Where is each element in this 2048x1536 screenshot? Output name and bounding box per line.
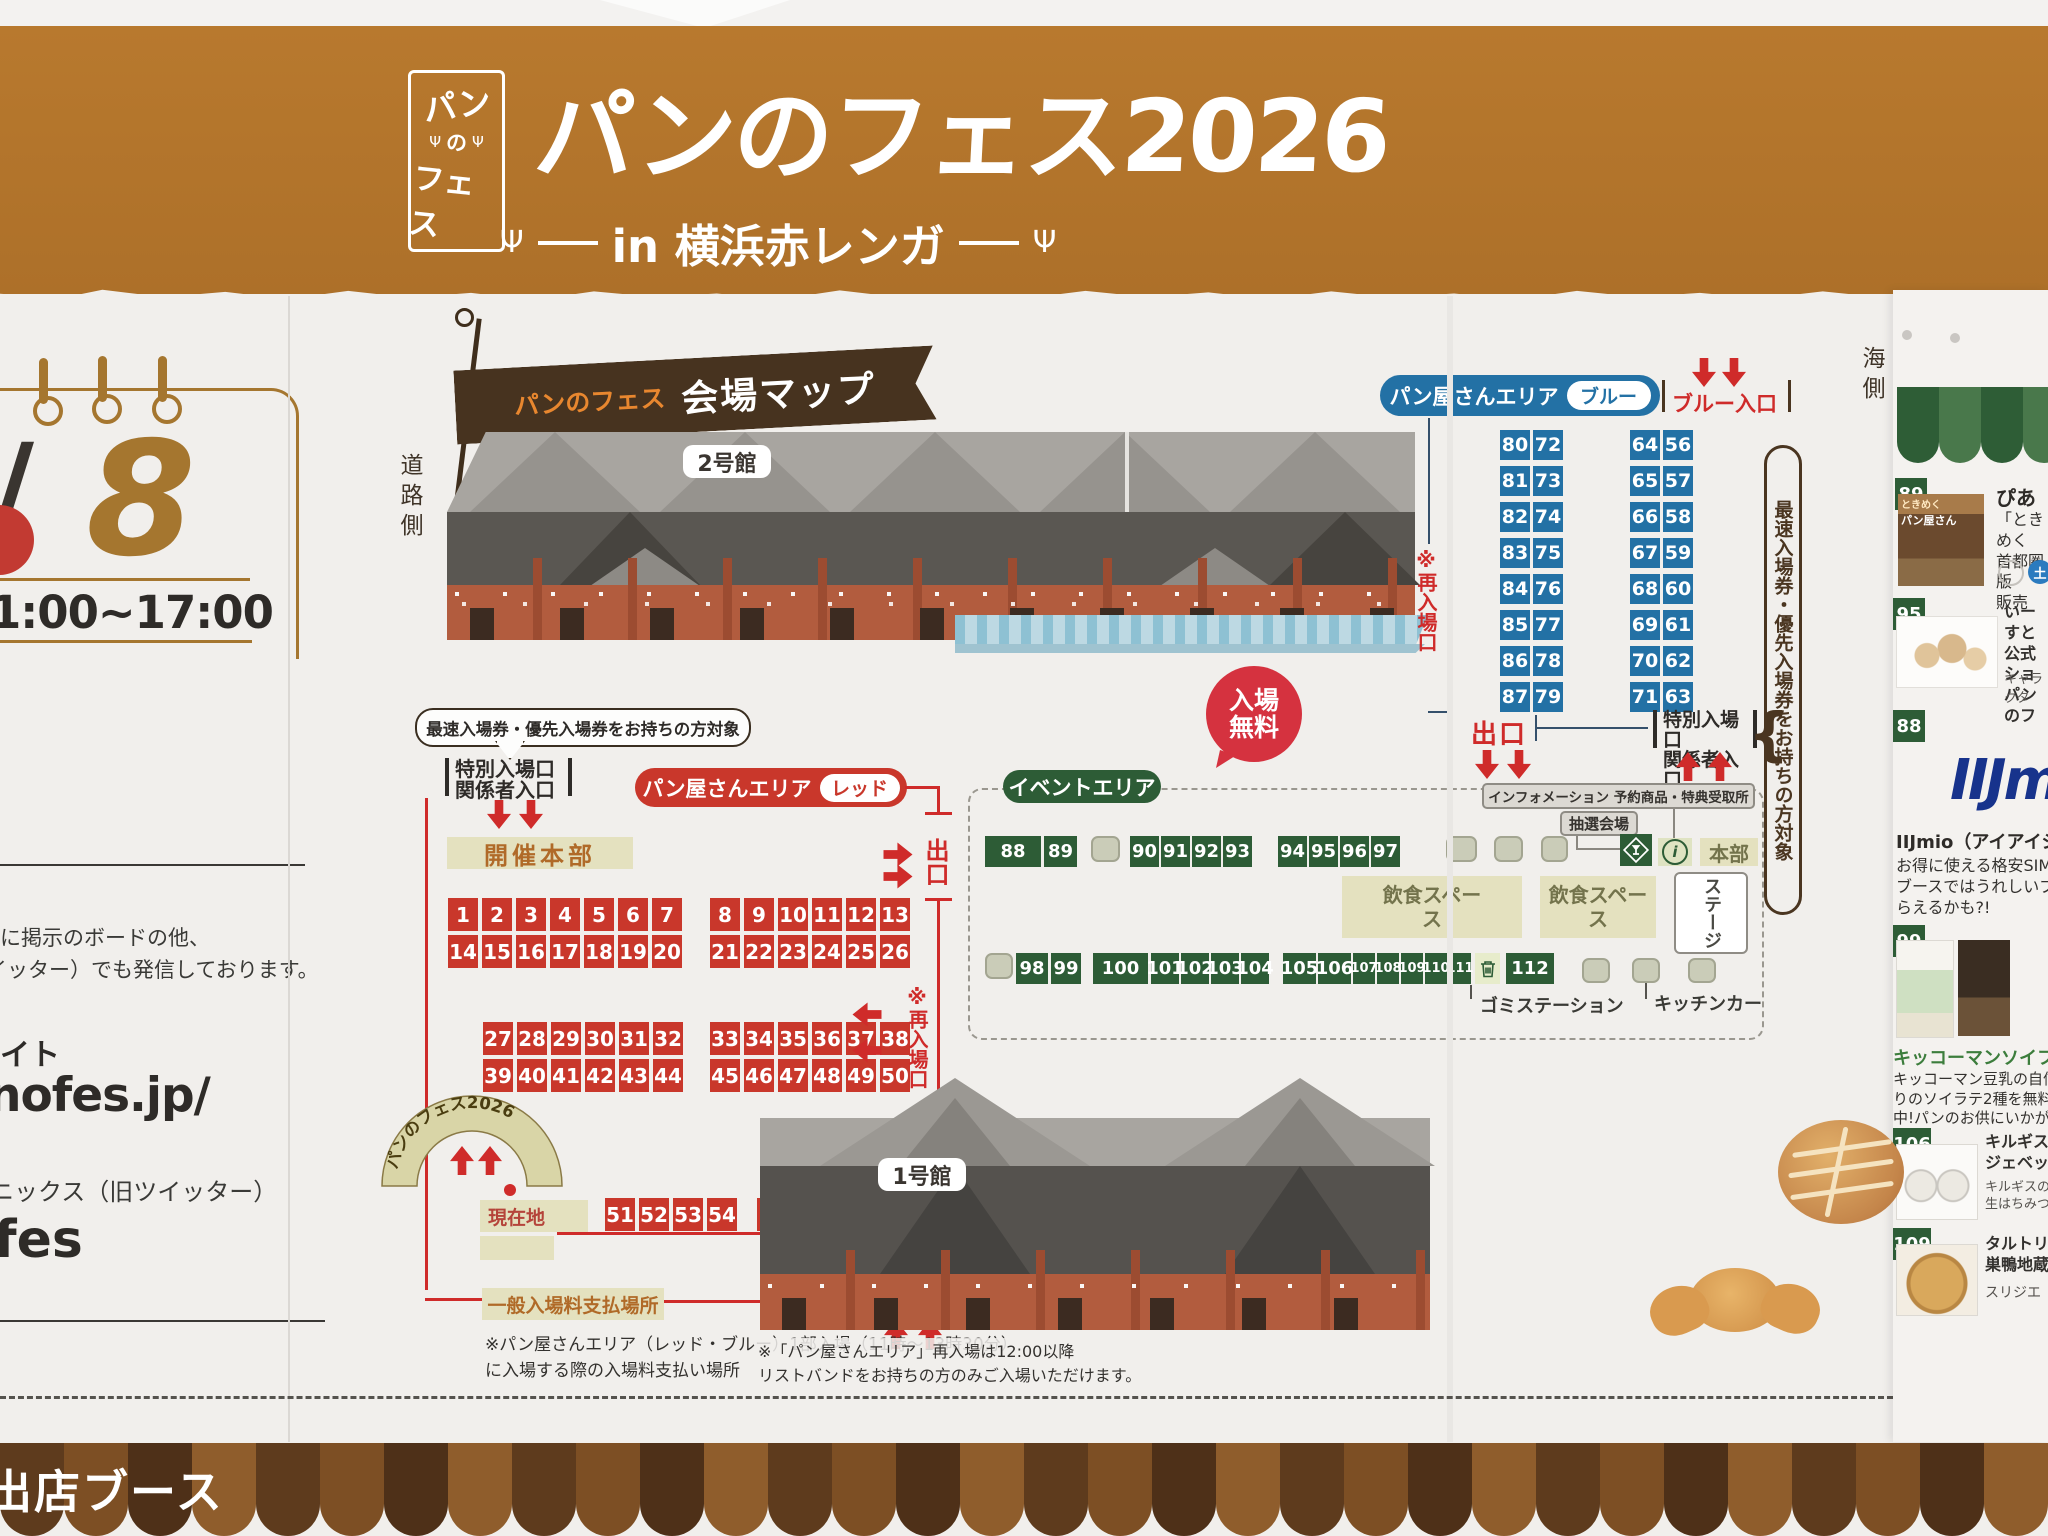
building1-name: 1号館 <box>892 1159 951 1191</box>
blue-connector <box>1428 418 1430 544</box>
event-area-label: イベントエリア <box>1009 772 1156 802</box>
booth-cell: 84 <box>1500 574 1530 604</box>
booth-cell: 15 <box>482 935 512 968</box>
red-booth-row: 51525354 <box>605 1198 737 1231</box>
dashed-separator <box>0 1396 1893 1399</box>
sidebar-entry-desc: お得に使える格安SIMをこ <box>1896 856 2048 877</box>
booth-cell: 95 <box>1309 836 1338 867</box>
booth-cell: 97 <box>1371 836 1400 867</box>
blue-area-tag: ブルー <box>1567 381 1651 410</box>
awning-stripe <box>640 1443 704 1536</box>
info-note-2: イッター）でも発信しております。 <box>0 954 319 984</box>
red-area-pill: パン屋さんエリア レッド <box>635 768 907 807</box>
booth-cell: 33 <box>710 1022 740 1055</box>
logo-text-mid: の <box>446 127 467 157</box>
booth-cell: 101 <box>1151 953 1179 984</box>
sidebar-entry-title: 巣鴨地蔵通 <box>1985 1255 2048 1276</box>
product-image <box>1896 1144 1978 1220</box>
booth-cell: 81 <box>1500 466 1530 496</box>
awning-stripe <box>1408 1443 1472 1536</box>
info-note-1: に掲示のボードの他、 <box>0 922 210 952</box>
flag-title: 会場マップ <box>680 359 878 423</box>
food-space-box: 飲食スペース <box>1540 876 1656 938</box>
booth-cell: 43 <box>619 1059 649 1092</box>
awning-stripe <box>1984 1443 2048 1536</box>
kitchen-car-label: キッチンカー <box>1654 990 1762 1016</box>
organizer-hq-box: 開催本部 <box>447 837 633 869</box>
product-image <box>1896 940 1954 1038</box>
special-entrance-line1: 特別入場口 <box>1663 711 1751 751</box>
red-area-label: パン屋さんエリア <box>642 773 811 803</box>
booth-cell: 53 <box>673 1198 703 1231</box>
booth-cell: 35 <box>778 1022 808 1055</box>
building2-label: 2号館 <box>683 445 771 478</box>
booth-cell: 60 <box>1663 574 1693 604</box>
panel-pin <box>1950 333 1960 343</box>
booth-cell: 30 <box>585 1022 615 1055</box>
booth-cell: 86 <box>1500 646 1530 676</box>
awning-stripe <box>512 1443 576 1536</box>
booth-cell: 98 <box>1016 953 1048 984</box>
booth-cell: 112 <box>1506 953 1554 984</box>
sidebar-entry-desc: 生はちみつ三 <box>1985 1197 2048 1214</box>
booth-cell: 70 <box>1630 646 1660 676</box>
booth-cell: 27 <box>483 1022 513 1055</box>
special-entrance-line1: 特別入場口 <box>455 759 555 780</box>
booth-cell: 22 <box>744 935 774 968</box>
kitchen-car-spot <box>1688 958 1716 983</box>
booth-cell: 31 <box>619 1022 649 1055</box>
wheat-icon: Ψ <box>429 133 441 151</box>
special-entrance-bar <box>568 758 572 796</box>
bread-fes-map-sign: パン Ψ の Ψ フェス パンのフェス2026 Ψ in 横浜赤レンガ Ψ / … <box>0 0 2048 1536</box>
blue-area-label: パン屋さんエリア <box>1389 381 1558 411</box>
booth-cell: 17 <box>550 935 580 968</box>
sidebar-entry-desc: キャラクタ <box>2004 668 2048 706</box>
payment-box: 一般入場料支払場所 <box>482 1288 664 1320</box>
blue-exit-arrow <box>1507 750 1531 779</box>
booth-cell: 20 <box>652 935 682 968</box>
beige-box <box>480 1236 554 1260</box>
footer-label: 出店ブース <box>0 1456 224 1522</box>
blue-entrance-arrow <box>1692 358 1716 387</box>
special-entrance-bar <box>445 758 449 796</box>
ticket-note-text: 最速入場券・優先入場券をお持ちの方対象 <box>426 716 740 740</box>
connector-line <box>1576 848 1624 850</box>
bottom-awning <box>0 1443 2048 1536</box>
booth-cell: 107 <box>1353 953 1375 984</box>
sidebar-entry-title: いーすと <box>2004 602 2048 644</box>
sidebar-entry-title: キルギスの白 <box>1985 1132 2048 1153</box>
booth-cell: 92 <box>1192 836 1221 867</box>
booth-cell: 10 <box>778 898 808 931</box>
red-booth-row: 454647484950 <box>710 1059 910 1092</box>
red-reentry-label: ※再入場口 <box>903 985 932 1089</box>
bracket-tick <box>1535 715 1537 741</box>
sidebar-awning <box>1897 387 2048 463</box>
book-cover-image: ときめく パン屋さん <box>1898 494 1984 586</box>
croissant-illustration <box>1650 1258 1820 1348</box>
awning-stripe <box>1981 387 2023 463</box>
booth-cell: 19 <box>618 935 648 968</box>
sidebar-entry-desc: 「ときめく <box>1996 510 2048 552</box>
booth-cell: 59 <box>1663 538 1693 568</box>
page-subtitle: in 横浜赤レンガ <box>612 210 945 275</box>
red-exit-label: 出口 <box>918 838 953 886</box>
bracket-line <box>1535 727 1648 729</box>
awning-stripe <box>1728 1443 1792 1536</box>
food-space-box: 飲食スペース <box>1342 876 1522 938</box>
red-special-arrow <box>519 800 543 829</box>
booth-cell: 66 <box>1630 502 1660 532</box>
red-booth-row: 272829303132 <box>483 1022 683 1055</box>
awning-stripe <box>1472 1443 1536 1536</box>
booth-cell: 54 <box>707 1198 737 1231</box>
event-area-pill: イベントエリア <box>1003 770 1161 803</box>
current-location-dot <box>504 1184 516 1196</box>
awning-stripe <box>896 1443 960 1536</box>
sidebar-entry-desc: キッコーマン豆乳の自信作! <box>1893 1070 2048 1090</box>
blue-exit-arrow <box>1475 750 1499 779</box>
booth-cell: 69 <box>1630 610 1660 640</box>
sns-account: fes <box>0 1210 83 1270</box>
lottery-box: 抽選会場 <box>1560 811 1638 836</box>
booth-cell: 14 <box>448 935 478 968</box>
free-entry-bubble: 入場 無料 <box>1206 666 1302 762</box>
building1-window-dots <box>768 1284 1423 1288</box>
booth-cell: 24 <box>812 935 842 968</box>
page-title: パンのフェス2026 <box>531 55 1369 200</box>
binder-ring <box>33 396 63 426</box>
red-booth-row: 1234567 <box>448 898 682 931</box>
red-area-tag: レッド <box>820 774 900 802</box>
free-entry-line2: 無料 <box>1229 714 1279 742</box>
blue-booth-column: 8081828384858687 <box>1500 430 1530 712</box>
booth-cell: 4 <box>550 898 580 931</box>
booth-cell: 106 <box>1318 953 1351 984</box>
information-box: インフォメーション 予約商品・特典受取所 <box>1482 783 1755 809</box>
sidebar-entry-title: ジェベックジ <box>1985 1153 2048 1174</box>
flag-knob <box>455 308 474 327</box>
wheat-icon: Ψ <box>1033 225 1057 260</box>
booth-cell: 99 <box>1051 953 1081 984</box>
blue-booth-column: 5657585960616263 <box>1663 430 1693 712</box>
booth-cell: 75 <box>1533 538 1563 568</box>
booth-cell: 6 <box>618 898 648 931</box>
connector-line <box>1645 983 1647 999</box>
awning-stripe <box>448 1443 512 1536</box>
booth-cell: 3 <box>516 898 546 931</box>
awning-stripe <box>2023 387 2048 463</box>
red-booth-row: 8910111213 <box>710 898 910 931</box>
panel-seam <box>288 296 290 1442</box>
time-rule <box>0 578 250 581</box>
booth-cell: 89 <box>1044 836 1077 867</box>
booth-cell: 42 <box>585 1059 615 1092</box>
booth-cell: 26 <box>880 935 910 968</box>
organizer-hq-label: 開催本部 <box>484 836 596 871</box>
booth-cell: 18 <box>584 935 614 968</box>
booth-cell: 57 <box>1663 466 1693 496</box>
booth-cell: 110 <box>1425 953 1447 984</box>
payment-label: 一般入場料支払場所 <box>487 1291 658 1318</box>
building2-window-dots <box>455 592 1407 596</box>
wheat-icon: Ψ <box>472 133 484 151</box>
wheat-icon: Ψ <box>500 225 524 260</box>
trash-station-label: ゴミステーション <box>1480 992 1624 1018</box>
booth-cell: 94 <box>1278 836 1307 867</box>
festival-logo-box: パン Ψ の Ψ フェス <box>408 70 505 252</box>
red-exit-arrow <box>884 843 913 867</box>
awning-stripe <box>384 1443 448 1536</box>
red-special-arrow <box>487 800 511 829</box>
booth-cell: 73 <box>1533 466 1563 496</box>
subtitle-rule <box>538 241 598 245</box>
panel-pin <box>1902 330 1912 340</box>
booth-cell: 65 <box>1630 466 1660 496</box>
booth-cell: 109 <box>1401 953 1423 984</box>
booth-cell: 41 <box>551 1059 581 1092</box>
booth-cell: 1 <box>448 898 478 931</box>
booth-cell: 108 <box>1377 953 1399 984</box>
booth-cell: 52 <box>639 1198 669 1231</box>
facility-box <box>985 953 1013 979</box>
kitchen-car-spot <box>1632 958 1660 983</box>
booth-cell: 13 <box>880 898 910 931</box>
panel-seam <box>1447 296 1453 1442</box>
booth-cell: 61 <box>1663 610 1693 640</box>
booth-cell: 40 <box>517 1059 547 1092</box>
awning-stripe <box>1897 387 1939 463</box>
booth-cell: 11 <box>812 898 842 931</box>
red-line <box>905 786 939 789</box>
building1-label: 1号館 <box>878 1158 966 1191</box>
building2-name: 2号館 <box>697 446 756 478</box>
sidebar-entry-desc: スリジエ <box>1985 1282 2041 1302</box>
time-rule <box>0 640 252 643</box>
booth-cell: 8 <box>710 898 740 931</box>
site-url: nofes.jp/ <box>0 1068 210 1123</box>
booth-cell: 56 <box>1663 430 1693 460</box>
awning-stripe <box>1600 1443 1664 1536</box>
booth-cell: 47 <box>778 1059 808 1092</box>
booth-cell: 87 <box>1500 682 1530 712</box>
building2-window-dots <box>462 602 1407 606</box>
awning-stripe <box>704 1443 768 1536</box>
building2-awning-edge <box>955 644 1425 653</box>
awning-stripe <box>256 1443 320 1536</box>
current-location-label: 現在地 <box>488 1203 545 1230</box>
awning-stripe <box>1280 1443 1344 1536</box>
stage-box: ステージ <box>1674 872 1748 954</box>
booth-cell: 7 <box>652 898 682 931</box>
awning-stripe <box>768 1443 832 1536</box>
booth-cell: 77 <box>1533 610 1563 640</box>
blue-area-pill: パン屋さんエリア ブルー <box>1380 375 1660 416</box>
booth-cell: 103 <box>1211 953 1239 984</box>
facility-box <box>1091 836 1120 862</box>
ticket-note-bubble: 最速入場券・優先入場券をお持ちの方対象 <box>415 708 751 747</box>
flag-logo: パンのフェス <box>513 379 666 423</box>
hq-label: 本部 <box>1709 838 1749 867</box>
sidebar-entry-desc: 中!パンのお供にいかが? <box>1893 1109 2048 1129</box>
sidebar-entry-title: ぴあ <box>1996 482 2036 511</box>
priority-note-pill: 最速入場券・優先入場券をお持ちの方対象 <box>1764 445 1802 915</box>
sidebar-entry-title: キッコーマンソイフー <box>1893 1044 2048 1070</box>
booth-cell: 48 <box>812 1059 842 1092</box>
booth-cell: 49 <box>846 1059 876 1092</box>
booth-cell: 51 <box>605 1198 635 1231</box>
booth-cell: 62 <box>1663 646 1693 676</box>
awning-stripe <box>1344 1443 1408 1536</box>
logo-text-top: パン <box>420 75 494 132</box>
booth-cell: 105 <box>1283 953 1316 984</box>
stage-label: ステージ <box>1698 877 1724 949</box>
booth-cell: 44 <box>653 1059 683 1092</box>
event-booth-row2: 9899100101102103104105106107108109110111… <box>985 953 1554 984</box>
product-image <box>1958 940 2010 1036</box>
product-image <box>1896 1244 1978 1316</box>
awning-stripe <box>832 1443 896 1536</box>
awning-stripe <box>320 1443 384 1536</box>
booth-cell: 2 <box>482 898 512 931</box>
kitchen-car-spot <box>1582 958 1610 983</box>
sidebar-entry-desc: ブースではうれしいプレゼン <box>1896 877 2048 898</box>
awning-stripe <box>576 1443 640 1536</box>
booth-cell: 23 <box>778 935 808 968</box>
bread-boule-illustration <box>1778 1120 1904 1224</box>
awning-stripe <box>1024 1443 1088 1536</box>
sea-side-label: 海側 <box>1854 346 1888 406</box>
lottery-venue-icon <box>1620 834 1652 866</box>
awning-stripe <box>1088 1443 1152 1536</box>
sidebar-entry-title: タルトリア <box>1985 1234 2048 1255</box>
open-hours: 1:00~17:00 <box>0 586 273 639</box>
booth-cell: 12 <box>846 898 876 931</box>
subtitle-rule <box>959 241 1019 245</box>
booth-cell: 72 <box>1533 430 1563 460</box>
booth-cell: 90 <box>1130 836 1159 867</box>
booth-cell: 102 <box>1181 953 1209 984</box>
awning-stripe <box>1216 1443 1280 1536</box>
awning-stripe <box>1152 1443 1216 1536</box>
booth-cell: 46 <box>744 1059 774 1092</box>
logo-text-bottom: フェス <box>407 152 507 251</box>
red-booth-row: 14151617181920 <box>448 935 682 968</box>
booth-cell: 36 <box>812 1022 842 1055</box>
booth-cell: 76 <box>1533 574 1563 604</box>
iijmio-logo: IIJmio <box>1950 748 2048 813</box>
sidebar-entry-desc: りのソイラテ2種を無料プレ <box>1893 1090 2048 1110</box>
red-footnote-2: に入場する際の入場料支払い場所 <box>485 1356 740 1381</box>
facility-box <box>1541 836 1568 862</box>
divider <box>0 864 305 866</box>
booth-cell: 71 <box>1630 682 1660 712</box>
awning-stripe <box>1664 1443 1728 1536</box>
sidebar-entry-desc: らえるかも?! <box>1896 898 2048 919</box>
red-line <box>925 812 952 815</box>
booth-cell: 63 <box>1663 682 1693 712</box>
awning-stripe <box>1792 1443 1856 1536</box>
blue-entrance-tick <box>1662 380 1665 412</box>
current-location-box: 現在地 <box>480 1200 588 1232</box>
booth-cell: 16 <box>516 935 546 968</box>
booth-cell: 67 <box>1630 538 1660 568</box>
building1-doors <box>782 1298 1422 1330</box>
blue-booth-column: 6465666768697071 <box>1630 430 1660 712</box>
reentry-footnote-2: リストバンドをお持ちの方のみご入場いただけます。 <box>755 1362 1144 1386</box>
booth-cell: 88 <box>985 836 1041 867</box>
booth-cell: 39 <box>483 1059 513 1092</box>
booth-cell: 85 <box>1500 610 1530 640</box>
sidebar-entry-title: IIJmio（アイアイジェイ <box>1896 828 2048 854</box>
connector-line <box>1673 809 1675 841</box>
blue-exit-label: 出口 <box>1471 714 1527 751</box>
booth-cell: 5 <box>584 898 614 931</box>
sidebar-entry-desc: キルギスの白 <box>1985 1180 2048 1197</box>
sidebar-booth-number: 88 <box>1893 710 1925 742</box>
booth-cell: 58 <box>1663 502 1693 532</box>
trash-station-icon <box>1475 953 1500 984</box>
booth-cell: 25 <box>846 935 876 968</box>
blue-booth-column: 7273747576777879 <box>1533 430 1563 712</box>
booth-cell: 21 <box>710 935 740 968</box>
red-booth-row: 394041424344 <box>483 1059 683 1092</box>
info-icon: i <box>1658 838 1692 866</box>
booth-cell: 93 <box>1223 836 1252 867</box>
reentry-footnote-1: ※「パン屋さんエリア」再入場は12:00以降 <box>755 1338 1077 1362</box>
ticket-badge: 土 <box>2028 560 2048 584</box>
event-booth-row1: 88899091929394959697 <box>985 836 1568 867</box>
map-flag: パンのフェス 会場マップ <box>453 345 936 444</box>
entrance-arch: パンのフェス2026 <box>380 1092 564 1188</box>
awning-stripe <box>960 1443 1024 1536</box>
booth-cell: 80 <box>1500 430 1530 460</box>
awning-stripe <box>1939 387 1981 463</box>
red-line <box>937 786 940 814</box>
booth-cell: 74 <box>1533 502 1563 532</box>
booth-cell: 34 <box>744 1022 774 1055</box>
connector-line <box>1470 985 1472 999</box>
booth-cell: 91 <box>1161 836 1190 867</box>
hq-box: 本部 <box>1700 838 1758 866</box>
booth-cell: 68 <box>1630 574 1660 604</box>
awning-stripe <box>1536 1443 1600 1536</box>
booth-cell: 45 <box>710 1059 740 1092</box>
awning-stripe <box>1920 1443 1984 1536</box>
booth-cell: 78 <box>1533 646 1563 676</box>
divider <box>0 1320 325 1322</box>
red-special-entrance: 特別入場口 関係者入口 <box>455 759 555 801</box>
road-side-label: 道路側 <box>392 453 426 543</box>
circle-icon <box>1998 560 2024 586</box>
blue-entrance-label: ブルー入口 <box>1672 388 1777 418</box>
booth-cell: 96 <box>1340 836 1369 867</box>
red-booth-row: 212223242526 <box>710 935 910 968</box>
blue-reentry-label: ※再入場口 <box>1412 548 1441 652</box>
facility-box <box>1494 836 1523 862</box>
booth-cell: 64 <box>1630 430 1660 460</box>
red-line <box>425 1298 485 1301</box>
booth-cell: 83 <box>1500 538 1530 568</box>
red-line <box>425 798 428 1290</box>
booth-cell: 100 <box>1093 953 1148 984</box>
booth-cell: 32 <box>653 1022 683 1055</box>
sns-label: ニックス（旧ツイッター） <box>0 1172 277 1207</box>
booth-cell: 79 <box>1533 682 1563 712</box>
free-entry-line1: 入場 <box>1229 687 1279 715</box>
booth-cell: 9 <box>744 898 774 931</box>
